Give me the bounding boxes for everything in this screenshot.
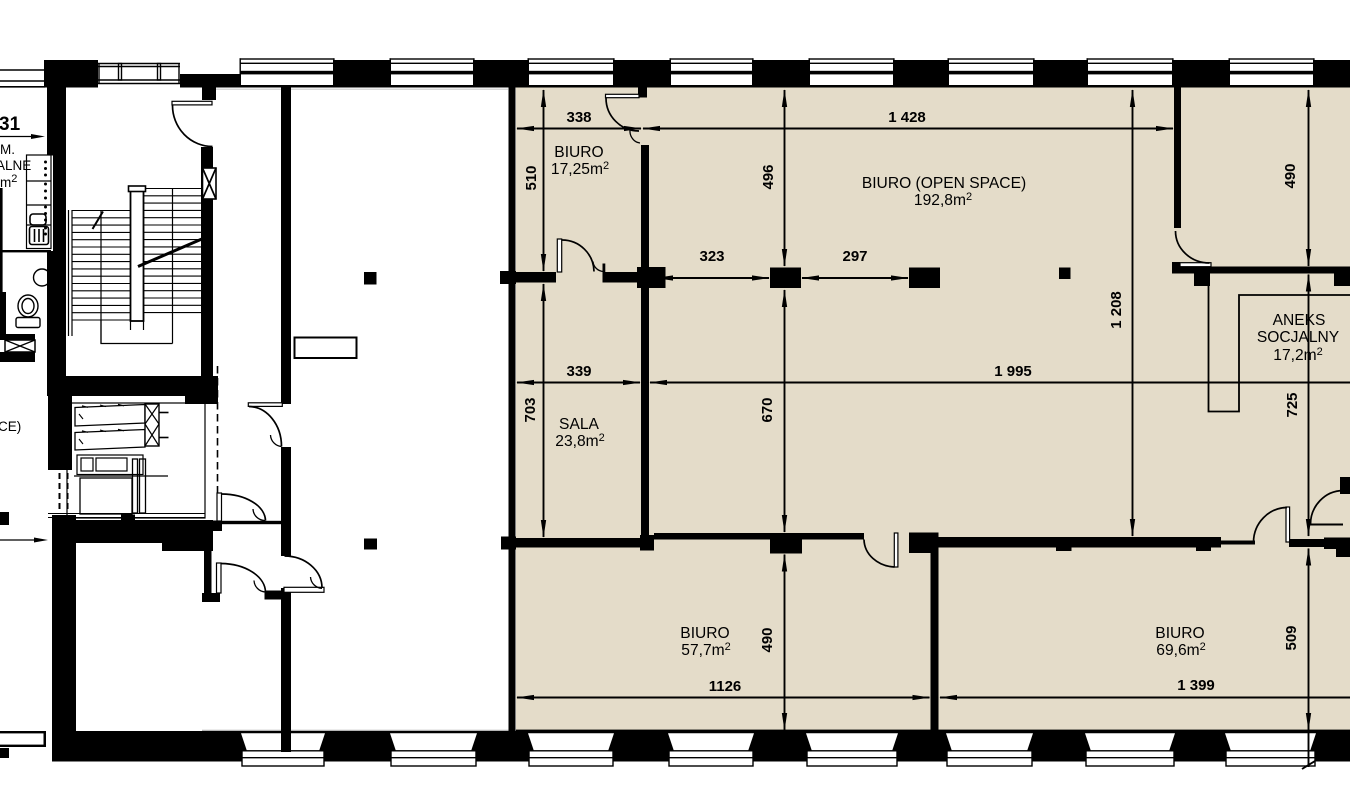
svg-text:1 428: 1 428 <box>888 109 926 126</box>
svg-text:297: 297 <box>842 248 867 265</box>
svg-text:509: 509 <box>1283 625 1300 650</box>
svg-text:BIURO: BIURO <box>680 625 729 642</box>
svg-text:69,6m2: 69,6m2 <box>1156 641 1205 659</box>
svg-text:490: 490 <box>759 627 776 652</box>
svg-text:CE): CE) <box>0 419 21 434</box>
svg-text:192,8m2: 192,8m2 <box>914 191 972 209</box>
svg-text:338: 338 <box>566 109 591 126</box>
svg-text:496: 496 <box>760 164 777 189</box>
svg-text:1 208: 1 208 <box>1108 291 1125 329</box>
svg-text:510: 510 <box>523 165 540 190</box>
svg-text:BIURO (OPEN SPACE): BIURO (OPEN SPACE) <box>862 175 1026 192</box>
svg-text:1 399: 1 399 <box>1177 677 1215 694</box>
svg-text:SALA: SALA <box>559 416 599 433</box>
svg-text:725: 725 <box>1284 392 1301 417</box>
svg-text:490: 490 <box>1282 163 1299 188</box>
svg-text:339: 339 <box>566 363 591 380</box>
svg-text:1126: 1126 <box>709 678 742 695</box>
svg-text:m2: m2 <box>0 173 17 190</box>
svg-text:57,7m2: 57,7m2 <box>681 641 730 659</box>
svg-text:23,8m2: 23,8m2 <box>555 432 604 450</box>
svg-text:BIURO: BIURO <box>554 144 603 161</box>
svg-text:ANEKS: ANEKS <box>1273 312 1326 329</box>
svg-text:M.: M. <box>0 142 15 157</box>
svg-text:31: 31 <box>0 114 21 135</box>
svg-text:323: 323 <box>699 248 724 265</box>
svg-text:17,2m2: 17,2m2 <box>1273 346 1322 364</box>
svg-text:670: 670 <box>759 397 776 422</box>
svg-text:17,25m2: 17,25m2 <box>551 160 609 178</box>
svg-text:BIURO: BIURO <box>1155 625 1204 642</box>
svg-text:SOCJALNY: SOCJALNY <box>1257 329 1340 346</box>
svg-text:703: 703 <box>522 397 539 422</box>
svg-text:1 995: 1 995 <box>994 363 1032 380</box>
svg-text:ALNE: ALNE <box>0 158 31 173</box>
